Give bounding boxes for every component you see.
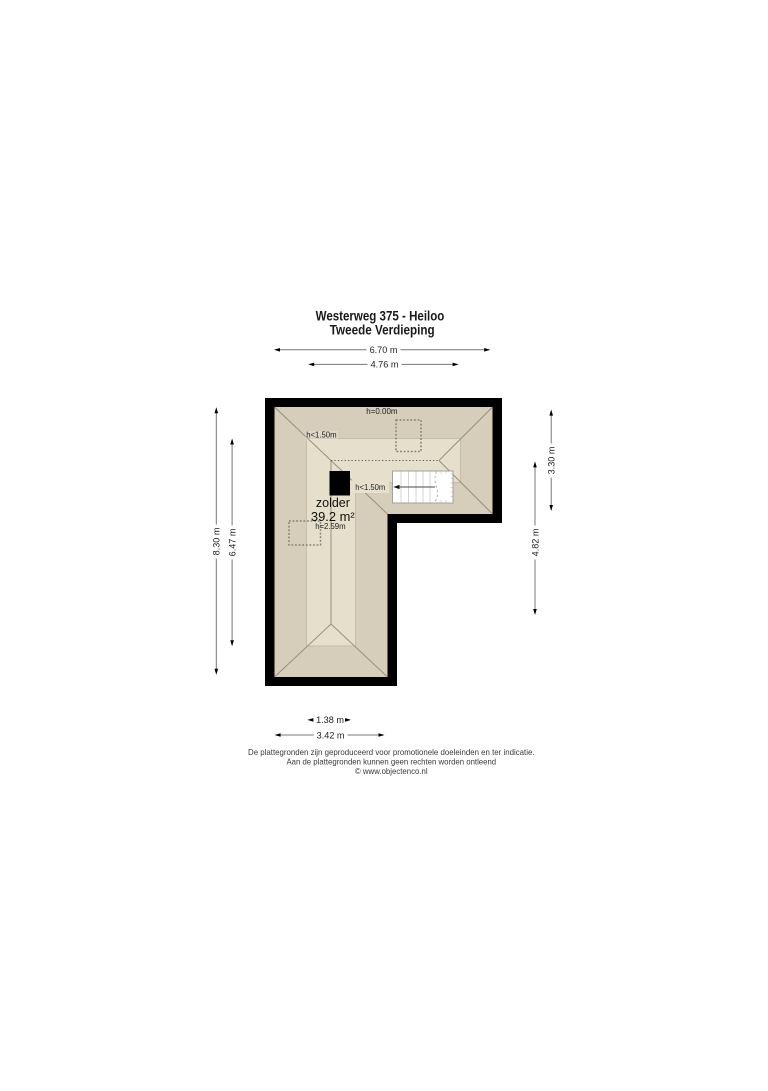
svg-text:8.30 m: 8.30 m bbox=[212, 528, 222, 556]
svg-text:zolder: zolder bbox=[316, 496, 350, 510]
svg-text:Tweede Verdieping: Tweede Verdieping bbox=[330, 322, 435, 338]
svg-text:h<1.50m: h<1.50m bbox=[306, 431, 337, 440]
svg-text:De plattegronden zijn geproduc: De plattegronden zijn geproduceerd voor … bbox=[248, 748, 535, 757]
svg-text:Aan de plattegronden kunnen ge: Aan de plattegronden kunnen geen rechten… bbox=[286, 757, 496, 766]
svg-text:3.30 m: 3.30 m bbox=[547, 447, 557, 475]
svg-text:4.82 m: 4.82 m bbox=[530, 529, 540, 557]
svg-text:6.47 m: 6.47 m bbox=[227, 529, 237, 557]
svg-text:© www.objectenco.nl: © www.objectenco.nl bbox=[355, 767, 428, 776]
svg-text:h=2.59m: h=2.59m bbox=[315, 522, 346, 531]
svg-text:4.76 m: 4.76 m bbox=[371, 360, 399, 370]
svg-text:3.42 m: 3.42 m bbox=[317, 730, 345, 740]
svg-text:h=0.00m: h=0.00m bbox=[366, 407, 398, 416]
svg-text:1.38 m: 1.38 m bbox=[316, 715, 344, 725]
svg-text:6.70 m: 6.70 m bbox=[370, 345, 398, 355]
svg-text:h<1.50m: h<1.50m bbox=[355, 483, 385, 492]
